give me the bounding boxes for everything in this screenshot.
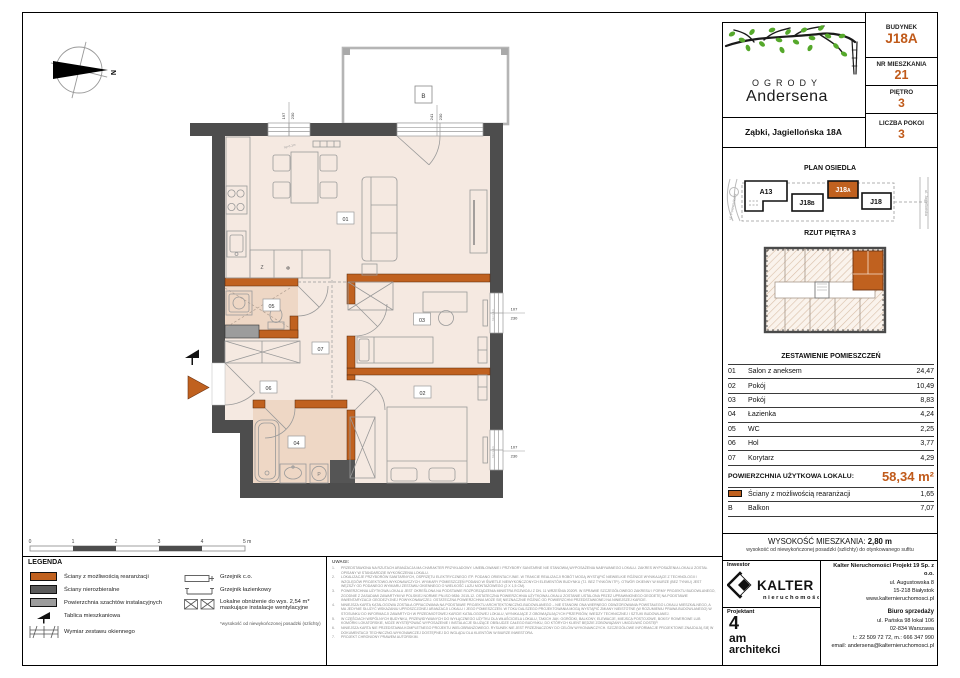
note-item: 6.NINIEJSZA KARTA NIE PRZEDSTAWIA KOMPLE… [332,626,716,635]
legend-item: Ściany nierozbieralne [64,587,119,593]
row-no: 02 [728,383,748,390]
note-number: 7. [332,635,341,640]
svg-text:3: 3 [158,539,161,545]
install-shaft [225,325,259,338]
legend-footnote: *wysokość od niewykończonej posadzki (sz… [220,621,321,626]
studio-line: am [729,632,780,644]
sales-phone: t.: 22 509 72 72, m.: 666 347 990 [822,634,934,642]
studio-line: architekci [729,645,780,656]
note-text: PROJEKT CHRONIONY PRAWEM AUTORSKIM. [341,635,716,640]
building-label-a13: A13 [760,189,773,196]
brand-name-bottom: Andersena [722,88,852,106]
row-area: 3,77 [896,440,934,447]
sales-line: 02-834 Warszawa [822,625,934,633]
room-label-06: 06 [266,386,272,392]
row-name: Balkon [748,505,896,512]
row-no: 03 [728,397,748,404]
row-no: B [728,505,748,512]
apartment-height: WYSOKOŚĆ MIESZKANIA: 2,80 m wysokość od … [722,537,938,553]
notes-section: UWAGI: 1.PRZEDSTAWIONA NA RZUTACH ARANŻA… [332,559,716,640]
line [722,22,865,23]
row-area: 7,07 [896,505,934,512]
svg-text:230: 230 [511,316,518,321]
note-number: 1. [332,566,341,575]
row-no: 07 [728,455,748,462]
row-area: 24,47 [896,368,934,375]
table-row-balcony: BBalkon7,07 [728,502,934,516]
building-label-j18a: J18A [835,187,851,194]
note-text: W CZĘŚCIACH WSPÓLNYCH BUDYNKU, PRZEWIDYW… [341,617,716,626]
company-website: www.kalternieruchomosci.pl [822,595,934,603]
room-label-03: 03 [419,318,425,324]
company-name: Kalter Nieruchomości Projekt 19 Sp. z o.… [822,562,934,579]
info-value: 21 [895,68,909,82]
note-item: 3.POWIERZCHNIA UŻYTKOWA LOKALU JEST OKRE… [332,589,716,603]
svg-text:4: 4 [201,539,204,545]
entrance-arrow-icon [188,376,209,399]
note-item: 2.LOKALIZACJE PRZYBORÓW SANITARNYCH, OSP… [332,575,716,589]
north-arrow-icon: N [44,35,116,105]
svg-text:0: 0 [29,539,32,545]
row-name: Łazienka [748,411,896,418]
brand-name-top: OGRODY [722,78,852,88]
info-label: NR MIESZKANIA [876,61,926,68]
note-text: PRZEDSTAWIONA NA RZUTACH ARANŻACJA MA CH… [341,566,716,575]
orange-wall-swatch [728,490,742,497]
legend-swatch-gray [30,598,57,607]
legend-item: Tablica mieszkaniowa [64,613,120,619]
row-name: Salon z aneksem [748,368,896,375]
rooms-table: ZESTAWIENIE POMIESZCZEŃ 01Salon z anekse… [728,353,934,517]
legend-radiator-co-icon [184,573,216,584]
table-row: 01Salon z aneksem24,47 [728,364,934,379]
line [722,147,938,148]
svg-text:5 m: 5 m [243,539,251,545]
row-no: 05 [728,426,748,433]
total-area-value: 58,34 m² [882,469,934,484]
floor-overview-title: RZUT PIĘTRA 3 [722,230,938,237]
svg-text:197: 197 [281,112,286,119]
row-name: Hol [748,440,896,447]
info-nr-mieszkania: NR MIESZKANIA 21 [865,57,938,85]
total-area-row: POWIERZCHNIA UŻYTKOWA LOKALU: 58,34 m² [728,466,934,488]
line [722,533,938,534]
room-label-01: 01 [343,217,349,223]
legend-item: Lokalne obniżenie do wys. 2,54 m* maskuj… [220,599,322,611]
svg-text:1: 1 [72,539,75,545]
height-note: wysokość od niewykończonej posadzki (szl… [722,547,938,553]
building-a13 [745,181,787,211]
developer-contact: Kalter Nieruchomości Projekt 19 Sp. z o.… [822,562,934,604]
line [722,607,820,608]
row-no: 01 [728,368,748,375]
room-label-02: 02 [420,391,426,397]
row-name: Ściany z możliwością rearanżacji [748,491,896,498]
row-area: 4,29 [896,455,934,462]
info-value: 3 [898,127,905,141]
company-line: 15-218 Białystok [822,587,934,595]
table-row: 07Korytarz4,29 [728,451,934,465]
catalog-card-page: N B [0,0,960,678]
note-number: 3. [332,589,341,603]
note-text: NINIEJSZA KARTA KATALOGOWA ZOSTAŁA OPRAC… [341,603,716,617]
note-item: 7.PROJEKT CHRONIONY PRAWEM AUTORSKIM. [332,635,716,640]
note-number: 5. [332,617,341,626]
legend-item: Grzejnik c.o. [220,574,252,580]
room-label-04: 04 [294,441,300,447]
legend-item: Grzejnik łazienkowy [220,587,271,593]
row-name: Pokój [748,397,896,404]
table-row: 02Pokój10,49 [728,379,934,393]
kalter-logo: KALTER nieruchomości [727,571,819,605]
info-label: PIĘTRO [890,89,913,96]
info-value: 3 [898,96,905,110]
table-row: 03Pokój8,83 [728,394,934,408]
table-row: 05WC2,25 [728,423,934,437]
svg-text:hp=1,1m: hp=1,1m [491,309,495,321]
line [722,560,938,561]
project-address: Ząbki, Jagiellońska 18A [722,117,865,147]
building-label-j18: J18 [870,199,882,206]
note-number: 4. [332,603,341,617]
svg-text:230: 230 [438,113,443,120]
info-label: LICZBA POKOI [879,120,924,127]
kalter-brand-text: KALTER [757,578,814,593]
floor-overview-map [760,244,890,340]
note-text: NINIEJSZA KARTA NIE PRZEDSTAWIA KOMPLETN… [341,626,716,635]
site-plan-title: PLAN OSIEDLA [722,165,938,172]
row-no: 06 [728,440,748,447]
fridge-icon: ❄ [286,265,291,272]
info-budynek: BUDYNEK J18A [865,12,938,57]
footer-divider [22,556,722,557]
north-label: N [109,70,116,75]
legend-lowered-ceiling-icon [184,599,216,610]
note-number: 2. [332,575,341,589]
legend-item: Wymiar zestawu okiennego [64,629,135,635]
legend-notes-divider [326,556,327,665]
note-text: POWIERZCHNIA UŻYTKOWA LOKALU JEST OKREŚL… [341,589,716,603]
svg-text:hp=1,1m: hp=1,1m [491,446,495,458]
legend-item: Ściany z możliwością rearanżacji [64,574,149,580]
street-left-label: ul. Powstańców [728,193,737,220]
row-no: 04 [728,411,748,418]
note-item: 4.NINIEJSZA KARTA KATALOGOWA ZOSTAŁA OPR… [332,603,716,617]
studio-logo: 4 am architekci [729,614,780,656]
note-item: 5.W CZĘŚCIACH WSPÓLNYCH BUDYNKU, PRZEWID… [332,617,716,626]
legend-title: LEGENDA [28,559,62,566]
notes-title: UWAGI: [332,559,716,564]
sales-office-label: Biuro sprzedaży [822,608,934,617]
kalter-brand-subtext: nieruchomości [763,595,819,601]
svg-text:230: 230 [511,454,518,459]
info-pietro: PIĘTRO 3 [865,85,938,113]
legend-radiator-bath-icon [184,586,216,597]
table-row-walls: Ściany z możliwością rearanżacji1,65 [728,488,934,502]
svg-text:107: 107 [511,307,518,312]
note-number: 6. [332,626,341,635]
info-label: BUDYNEK [886,24,917,31]
svg-text:107: 107 [511,445,518,450]
dishwasher-label: Z [260,265,263,271]
floor-plan-drawing: N B [22,12,722,556]
info-value: J18A [885,31,917,46]
row-name: Pokój [748,383,896,390]
row-area: 2,25 [896,426,934,433]
row-area: 4,24 [896,411,934,418]
svg-text:2: 2 [115,539,118,545]
svg-text:230: 230 [290,112,295,119]
sales-office-contact: Biuro sprzedaży ul. Pańska 98 lokal 106 … [822,608,934,650]
balcony-label: B [421,93,425,100]
room-label-05: 05 [269,304,275,310]
table-row: 06Hol3,77 [728,437,934,451]
svg-text:241: 241 [429,113,434,120]
row-name: WC [748,426,896,433]
investor-label: Inwestor [727,562,750,568]
row-area: 8,83 [896,397,934,404]
legend-swatch-dark [30,585,57,594]
height-label: WYSOKOŚĆ MIESZKANIA: [768,537,865,546]
sales-email: email: andersena@kalternieruchomosci.pl [822,642,934,650]
legend-window-dim-icon [28,624,60,640]
legend-item: Powierzchnia szachtów instalacyjnych [64,600,162,606]
rooms-table-title: ZESTAWIENIE POMIESZCZEŃ [728,353,934,360]
balcony: B [343,48,508,124]
tablica-icon [185,350,199,366]
street-right-label: ul. Jagiellońska [924,190,928,217]
legend-swatch-orange [30,572,57,581]
info-liczba-pokoi: LICZBA POKOI 3 [865,113,938,147]
install-shaft-bath [330,460,355,483]
row-area: 1,65 [896,491,934,498]
total-area-label: POWIERZCHNIA UŻYTKOWA LOKALU: [728,473,882,480]
height-value: 2,80 m [868,537,892,546]
room-label-07: 07 [318,347,324,353]
note-text: LOKALIZACJE PRZYBORÓW SANITARNYCH, OSPRZ… [341,575,716,589]
brand-tree-illustration [724,24,863,76]
table-row: 04Łazienka4,24 [728,408,934,422]
row-name: Korytarz [748,455,896,462]
building-label-j18b: J18B [799,200,815,207]
legend-tablica-icon [36,611,52,624]
note-item: 1.PRZEDSTAWIONA NA RZUTACH ARANŻACJA MA … [332,566,716,575]
company-line: ul. Augustowska 8 [822,579,934,587]
scale-bar: 0 1 2 3 4 5 m [29,539,252,551]
row-area: 10,49 [896,383,934,390]
sales-line: ul. Pańska 98 lokal 106 [822,617,934,625]
studio-line: 4 [729,614,780,632]
credits-divider [820,560,821,666]
